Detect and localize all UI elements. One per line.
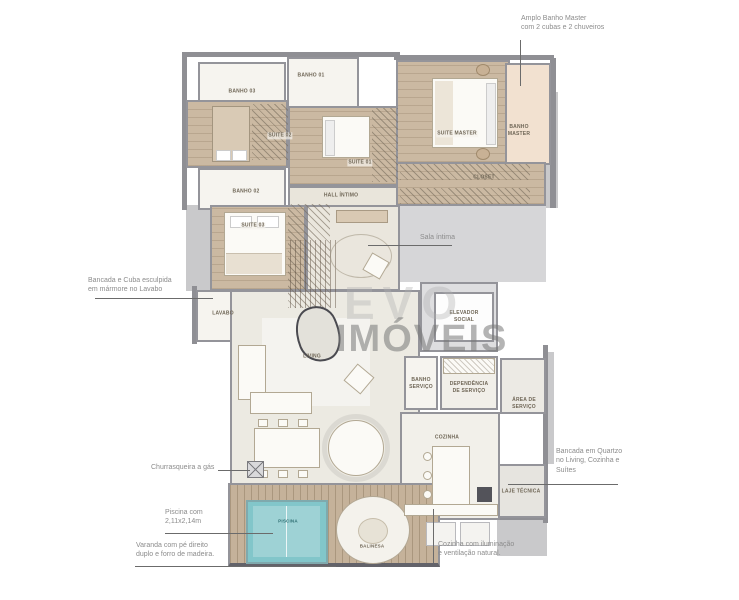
label-balinesa: BALINESA bbox=[360, 544, 385, 551]
label-elevador-social: ELEVADOR SOCIAL bbox=[449, 310, 478, 325]
bed-dependencia bbox=[443, 358, 495, 374]
slab-left-of-suite03 bbox=[186, 205, 210, 291]
room-banho-01 bbox=[287, 57, 359, 109]
nightstand-master-top bbox=[476, 64, 490, 76]
annotation-bancada-quartzo: Bancada em Quartzo no Living, Cozinha e … bbox=[556, 447, 622, 475]
label-suite-03: SUITE 03 bbox=[240, 222, 265, 229]
bed-suite-01 bbox=[322, 116, 370, 158]
annotation-churrasqueira: Churrasqueira a gás bbox=[151, 463, 214, 472]
dining-chair bbox=[298, 419, 308, 427]
kitchen-stool bbox=[423, 452, 432, 461]
dining-chair bbox=[278, 419, 288, 427]
dining-chair bbox=[258, 419, 268, 427]
leader-churrasqueira bbox=[218, 470, 250, 471]
label-banho-02: BANHO 02 bbox=[233, 188, 260, 195]
leader-bancada-marmore bbox=[95, 298, 213, 299]
dining-chair bbox=[298, 470, 308, 478]
label-piscina: PISCINA bbox=[278, 519, 298, 526]
label-dependencia-servico: DEPENDÊNCIA DE SERVIÇO bbox=[450, 381, 489, 396]
annotation-amplo-banho-master: Amplo Banho Master com 2 cubas e 2 chuve… bbox=[521, 14, 604, 33]
leader-piscina bbox=[165, 533, 273, 534]
bed-master-pillows bbox=[486, 83, 496, 145]
bed-suite-01-pillows bbox=[325, 120, 335, 156]
kitchen-stool bbox=[423, 471, 432, 480]
room-banho-master bbox=[505, 63, 551, 165]
sofa-sala-intima bbox=[336, 210, 388, 223]
leader-amplo-banho bbox=[520, 40, 521, 86]
annotation-piscina: Piscina com 2,11x2,14m bbox=[165, 508, 203, 527]
sofa-living-bottom bbox=[250, 392, 312, 414]
label-banho-03: BANHO 03 bbox=[229, 88, 256, 95]
label-living: LIVING bbox=[303, 353, 321, 360]
label-cozinha: COZINHA bbox=[435, 434, 459, 441]
pool-lane-line bbox=[286, 506, 287, 557]
slab-social-hall-terrace bbox=[400, 206, 546, 282]
closet-wardrobe-bottom bbox=[400, 188, 530, 204]
leader-varanda bbox=[135, 566, 336, 567]
closet-wardrobe-top bbox=[400, 164, 530, 180]
leader-sala-intima bbox=[368, 245, 452, 246]
leader-bancada-quartzo bbox=[508, 484, 618, 485]
label-suite-01: SUITE 01 bbox=[347, 159, 372, 166]
annotation-varanda: Varanda com pé direito duplo e forro de … bbox=[136, 541, 214, 560]
dining-chair bbox=[278, 470, 288, 478]
label-banho-01: BANHO 01 bbox=[298, 72, 325, 79]
leader-cozinha bbox=[433, 509, 434, 563]
label-area-servico: ÁREA DE SERVIÇO bbox=[512, 397, 536, 412]
annotation-sala-intima: Sala íntima bbox=[420, 233, 455, 242]
kitchen-stove bbox=[477, 487, 492, 502]
kitchen-stool bbox=[423, 490, 432, 499]
kitchen-counter bbox=[404, 504, 498, 516]
kitchen-island bbox=[432, 446, 470, 506]
wardrobe-suite-01 bbox=[372, 108, 398, 182]
label-laje-tecnica: LAJE TÉCNICA bbox=[502, 488, 541, 495]
label-banho-master: BANHO MASTER bbox=[508, 124, 530, 139]
label-suite-master: SUITE MASTER bbox=[436, 130, 478, 137]
balinese-bed-center bbox=[358, 518, 388, 544]
round-table bbox=[328, 420, 384, 476]
bed-suite-02-pillow bbox=[216, 150, 231, 161]
bed-suite-02 bbox=[212, 106, 250, 162]
nightstand-master-bottom bbox=[476, 148, 490, 160]
annotation-cozinha: Cozinha com iluminação e ventilação natu… bbox=[438, 540, 514, 559]
label-lavabo: LAVABO bbox=[212, 310, 234, 317]
pool bbox=[246, 500, 328, 564]
bed-suite-02-pillow-2 bbox=[232, 150, 247, 161]
label-suite-02: SUITE 02 bbox=[267, 132, 292, 139]
label-banho-servico: BANHO SERVIÇO bbox=[409, 377, 433, 392]
label-closet: CLOSET bbox=[473, 174, 494, 181]
label-hall-intimo: HALL ÍNTIMO bbox=[324, 192, 358, 199]
bed-suite-03-throw bbox=[226, 253, 282, 274]
annotation-bancada-marmore: Bancada e Cuba esculpida em mármore no L… bbox=[88, 276, 172, 295]
floorplan-canvas: BANHO 03 BANHO 01 SUITE 02 SUITE 01 BANH… bbox=[0, 0, 739, 600]
